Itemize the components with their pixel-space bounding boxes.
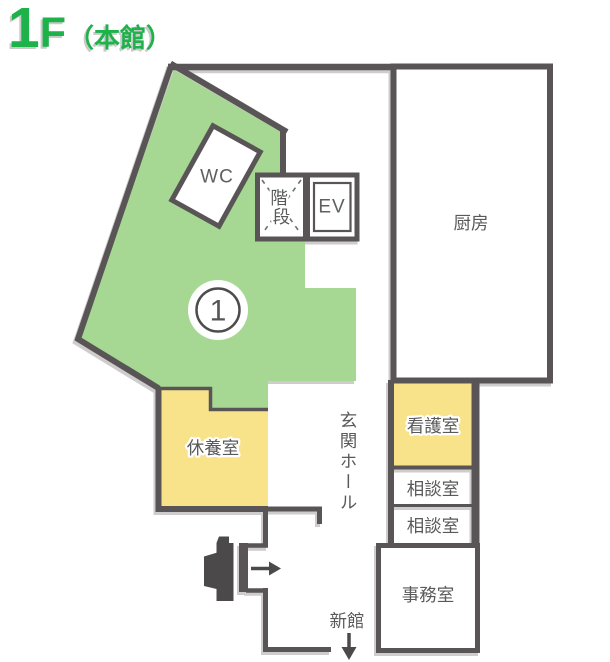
building-structure [78,64,550,651]
floor-plan: 1 WC 階 段 EV 厨房 休養室 看護室 相談室 相談室 事務室 新館 1F… [0,0,610,662]
office-label: 事務室 [402,585,455,605]
new-wing-label: 新館 [330,611,365,631]
area-badge: 1 [188,280,248,340]
building-name: （本館） [68,23,172,53]
consult-room-1-label: 相談室 [407,479,460,499]
vestibule-top-wall [263,509,320,524]
area-badge-number: 1 [210,295,227,328]
elevator-label: EV [318,197,345,218]
nurse-room-label: 看護室 [407,416,460,436]
entrance-arrow-icon [251,562,281,576]
floor-letter: F [40,9,66,57]
entrance-marker-icon [204,537,234,602]
entrance-hall-label: 玄関ホール [331,411,361,514]
wc-label: WC [200,167,234,188]
stairs-label: 階 段 [270,188,292,227]
new-wing-arrow-icon [342,633,357,660]
entrance-alcove-wall [239,543,248,592]
consult-room-2-label: 相談室 [407,516,460,536]
page-title: 1F（本館） [8,0,172,71]
kitchen-label: 厨房 [454,213,489,233]
floor-plan-svg: 1 WC 階 段 EV 厨房 休養室 看護室 相談室 相談室 事務室 新館 [0,0,610,662]
rest-room-label: 休養室 [187,438,240,458]
floor-number: 1 [8,0,40,60]
